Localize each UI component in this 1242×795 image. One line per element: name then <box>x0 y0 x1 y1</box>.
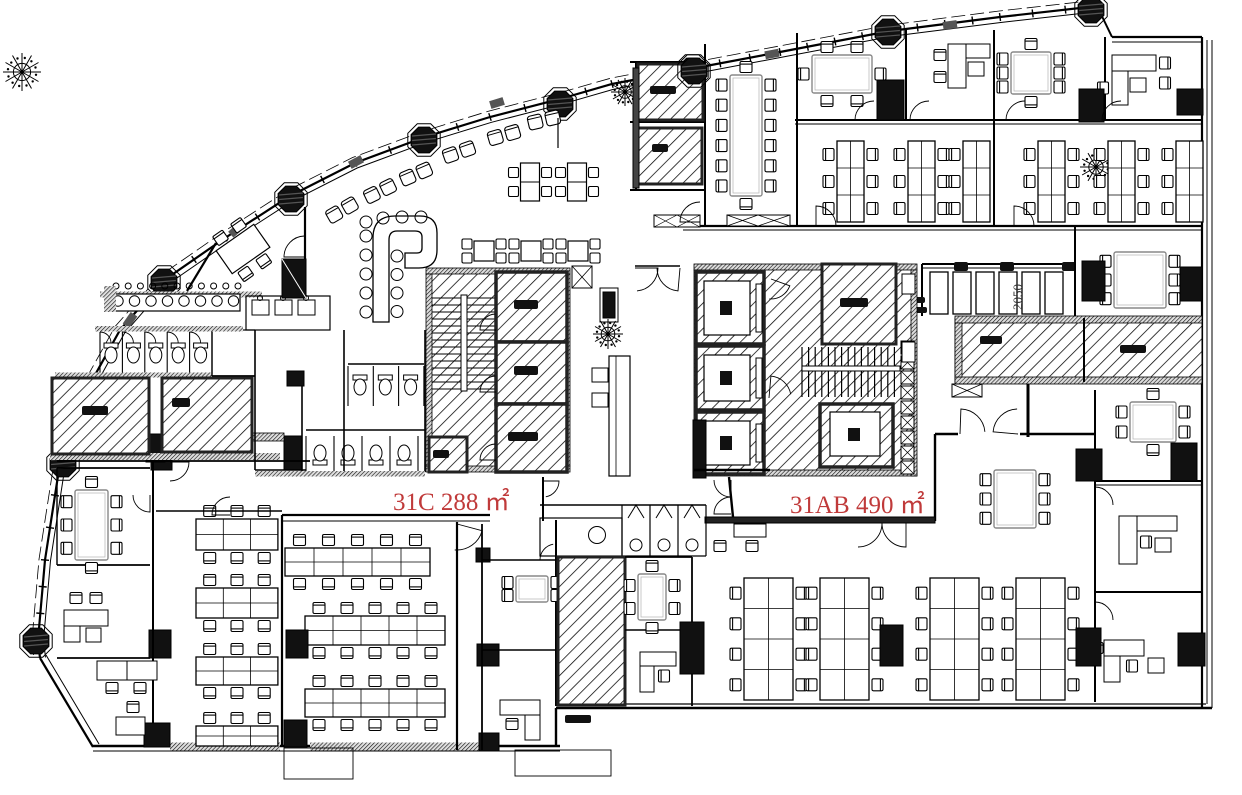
svg-text:2050: 2050 <box>1010 284 1025 310</box>
svg-text:31AB 490 ㎡: 31AB 490 ㎡ <box>790 491 925 519</box>
svg-text:31C 288 ㎡: 31C 288 ㎡ <box>393 488 510 516</box>
